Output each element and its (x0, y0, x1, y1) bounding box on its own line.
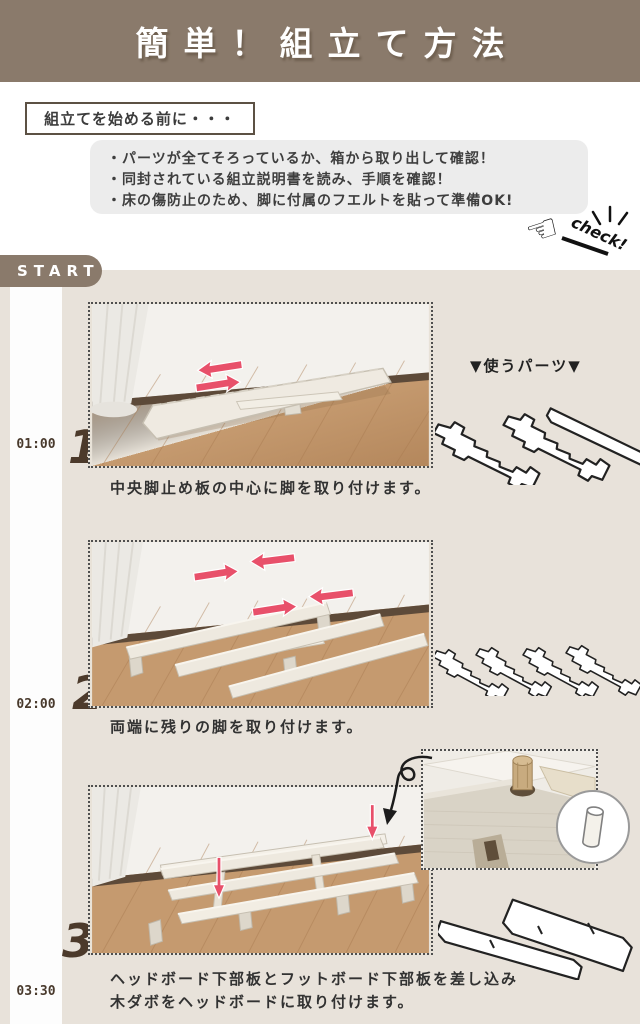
step-1-photo-scene (90, 304, 431, 466)
checklist-item: ・同封されている組立説明書を読み、手順を確認！ (107, 170, 588, 191)
emphasis-strokes-icon (593, 207, 627, 224)
start-label: START (17, 262, 100, 280)
step-3-time: 03:30 (10, 984, 62, 999)
pre-assembly-label-box: 組立てを始める前に・・・ (25, 102, 255, 135)
pre-assembly-label: 組立てを始める前に・・・ (44, 108, 236, 129)
step-3-parts-illustration (438, 878, 640, 980)
checklist-item: ・床の傷防止のため、脚に付属のフエルトを貼って準備OK! (107, 191, 588, 212)
step-1-parts-illustration (435, 390, 640, 485)
step-2-photo (88, 540, 433, 708)
step-2-time: 02:00 (10, 697, 62, 712)
step-2-caption: 両端に残りの脚を取り付けます。 (110, 716, 364, 739)
dowel-icon (563, 797, 623, 857)
check-label: check! (568, 212, 630, 254)
step-2-photo-scene (90, 542, 431, 706)
step-2-parts-illustration (435, 628, 640, 696)
step-3-caption-line2: 木ダボをヘッドボードに取り付けます。 (110, 991, 530, 1014)
pointing-hand-icon: ☜ (522, 206, 564, 255)
timeline-bar (10, 287, 62, 1024)
step-1-photo (88, 302, 433, 468)
step-1-caption: 中央脚止め板の中心に脚を取り付けます。 (110, 477, 432, 500)
header-banner: 簡単！組立て方法 (0, 0, 640, 82)
page-title: 簡単！組立て方法 (121, 17, 520, 65)
step-1-time: 01:00 (10, 437, 62, 452)
check-hand-icon: ☜ check! (522, 196, 640, 260)
checklist-box: ・パーツが全てそろっているか、箱から取り出して確認！ ・同封されている組立説明書… (90, 140, 588, 214)
dowel-callout-circle (556, 790, 630, 864)
parts-needed-label: ▼使うパーツ▼ (470, 355, 582, 376)
inset-pointer-arrow-icon (380, 752, 435, 830)
checklist-item: ・パーツが全てそろっているか、箱から取り出して確認！ (107, 149, 588, 170)
start-badge: START (0, 255, 102, 287)
